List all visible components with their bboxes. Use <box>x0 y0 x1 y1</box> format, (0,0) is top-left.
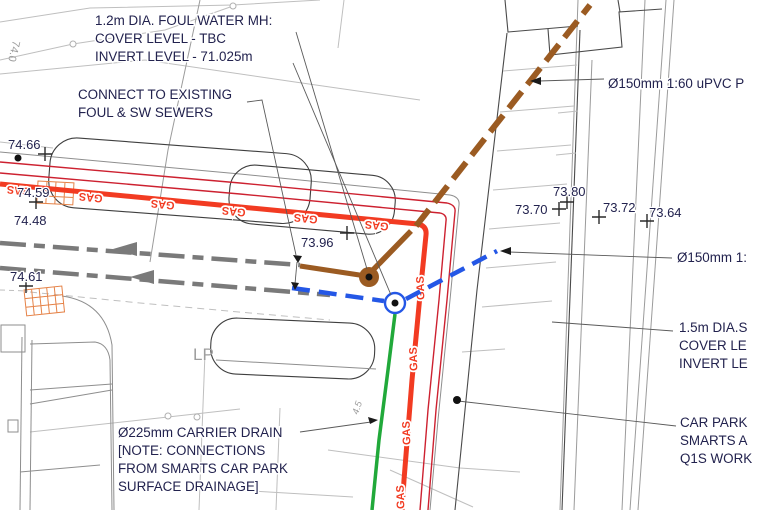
level-cross-icon <box>552 202 566 216</box>
annotation-pipe150: Ø150mm 1: <box>677 250 747 265</box>
building-edge <box>618 0 620 12</box>
building-edge <box>505 0 578 32</box>
contour-line <box>338 0 344 48</box>
gas-label: GAS <box>221 204 246 218</box>
kerb-dashed-line <box>30 292 330 320</box>
annotation-connect-line1: CONNECT TO EXISTING <box>78 87 232 102</box>
annotation-mh15-line3: INVERT LE <box>679 356 748 371</box>
leader-upvc <box>539 79 604 81</box>
annotation-carrier-line2: [NOTE: CONNECTIONS <box>118 443 265 458</box>
terrace-rung <box>482 301 552 307</box>
annotation-foul-mh-line1: 1.2m DIA. FOUL WATER MH: <box>95 13 272 28</box>
leader-connect-branch <box>295 262 297 284</box>
lamp-post-label: LP <box>193 345 214 364</box>
spot-level: 73.96 <box>301 235 334 250</box>
flow-arrow-icon <box>130 270 154 284</box>
leader-car-park <box>458 401 676 426</box>
crosshatch-patch <box>24 286 65 316</box>
foul-manhole-centre-dot <box>366 274 373 281</box>
spot-level: 74.66 <box>8 137 41 152</box>
annotation-foul-mh-line2: COVER LEVEL - TBC <box>95 31 226 46</box>
bay-divider <box>30 384 112 390</box>
island-inner-line <box>216 360 376 369</box>
structure-box <box>8 420 18 432</box>
annotation-carrier-line3: FROM SMARTS CAR PARK <box>118 461 288 476</box>
leader-carrier-drain <box>300 422 371 432</box>
leader-arrow-icon <box>293 255 302 263</box>
plot-line <box>560 0 578 510</box>
gas-label: GAS <box>78 190 103 204</box>
leader-arrow-icon <box>368 417 378 424</box>
foul-sewer-line <box>300 266 366 276</box>
annotation-foul-mh-line3: INVERT LEVEL - 71.025m <box>95 49 253 64</box>
spot-level: 73.72 <box>603 200 636 215</box>
bay-divider <box>30 390 112 404</box>
leader-mh15 <box>552 322 673 331</box>
terrace-rung <box>558 111 578 113</box>
annotation-text: 1.2m DIA. FOUL WATER MH: COVER LEVEL - T… <box>78 13 752 494</box>
kerb-line <box>20 337 22 510</box>
gas-label: GAS <box>293 211 318 225</box>
bay-divider <box>20 465 100 472</box>
gas-label: GAS <box>401 421 414 445</box>
carrier-drain-line <box>372 314 395 510</box>
annotation-upvc: Ø150mm 1:60 uPVC P <box>608 76 744 91</box>
spot-level: 74.61 <box>10 269 43 284</box>
spot-level: 74.59 <box>17 185 50 200</box>
annotation-carrier-line4: SURFACE DRAINAGE] <box>118 479 259 494</box>
survey-node <box>194 414 200 420</box>
drainage-site-plan: GAS GAS GAS GAS GAS GAS GAS GAS GAS GAS <box>0 0 766 510</box>
leader-foul-mh-2 <box>293 63 391 295</box>
gas-label: GAS <box>364 218 389 232</box>
survey-node <box>165 413 171 419</box>
survey-line <box>276 408 280 510</box>
annotation-connect-line2: FOUL & SW SEWERS <box>78 105 213 120</box>
reference-dot <box>453 396 461 404</box>
annotation-carpark-line3: Q1S WORK <box>680 451 752 466</box>
sw-manhole-centre-dot <box>392 300 399 307</box>
plan-canvas: GAS GAS GAS GAS GAS GAS GAS GAS GAS GAS <box>0 0 766 510</box>
leader-foul-mh <box>296 32 367 269</box>
spot-level: 73.64 <box>649 205 682 220</box>
foul-sewer-line <box>371 231 411 272</box>
gas-label: GAS <box>415 276 428 300</box>
annotation-carrier-line1: Ø225mm CARRIER DRAIN <box>118 425 282 440</box>
kerb-corner <box>62 296 114 510</box>
annotation-mh15-line2: COVER LE <box>679 338 747 353</box>
road-centreline <box>0 268 330 295</box>
reference-dot <box>15 155 22 162</box>
foul-sewer <box>300 5 590 287</box>
annotation-carpark-line1: CAR PARK <box>680 415 748 430</box>
terrace-rung <box>497 145 571 151</box>
gas-label: GAS <box>150 197 175 211</box>
terrace-rung <box>489 223 560 229</box>
spot-level: 73.70 <box>515 202 548 217</box>
gas-label: GAS <box>395 485 408 509</box>
annotation-mh15-line1: 1.5m DIA.S <box>679 320 748 335</box>
survey-node <box>230 3 236 9</box>
surface-water-sewer <box>292 251 497 510</box>
dimension-label: 4.5 <box>350 399 365 416</box>
survey-node <box>70 41 76 47</box>
leader-arrow-icon <box>500 247 511 255</box>
annotation-carpark-line2: SMARTS A <box>680 433 748 448</box>
island-outline <box>210 317 376 380</box>
contour-level-label: 74.0 <box>5 39 22 63</box>
level-cross-icon <box>340 226 354 240</box>
terrace-rung <box>486 262 556 268</box>
survey-line <box>462 349 505 352</box>
kerb-corner-inner <box>30 342 112 510</box>
gas-label: GAS <box>408 347 421 371</box>
spot-level: 73.80 <box>553 184 586 199</box>
spot-level: 74.48 <box>14 213 47 228</box>
kerb-line <box>30 340 32 510</box>
